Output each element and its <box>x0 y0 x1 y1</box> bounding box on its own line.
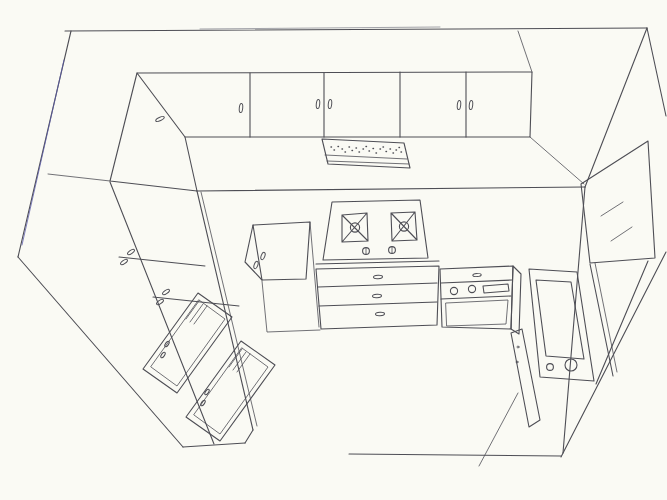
front-panel-b-outline <box>186 341 275 441</box>
ceiling-line <box>65 28 647 31</box>
cooktop <box>323 200 428 260</box>
door-handle-icon <box>127 248 136 255</box>
right-wall-unit <box>581 141 655 384</box>
counter-nosing <box>316 261 439 264</box>
cabinet-end-to-ceiling <box>518 31 532 72</box>
range-hood <box>322 139 410 168</box>
drawer-pull-icon <box>473 273 482 277</box>
hood-grille-line-1 <box>325 155 407 159</box>
door-handle-icon <box>155 116 165 123</box>
right-unit-outline <box>581 141 655 263</box>
door-handle-icon <box>239 103 243 113</box>
door-panel-outline <box>529 269 594 381</box>
door-handle-icon <box>316 99 320 109</box>
hinge-dot <box>517 346 519 348</box>
wall-corner-diagonal <box>585 28 647 187</box>
band-right-edge <box>197 191 253 430</box>
band-left-edge <box>110 182 214 444</box>
cooktop-panel <box>323 200 428 260</box>
door-inner-frame <box>446 300 508 326</box>
floor-skirting-line <box>349 454 561 456</box>
front-panel-a-outline <box>143 293 232 393</box>
back-wall-base-line <box>197 187 585 191</box>
door-handle-icon <box>457 100 461 110</box>
door-handle-icon <box>120 258 129 265</box>
corner-cabinet <box>245 222 320 332</box>
right-wall-base-line <box>563 187 585 453</box>
hood-grille-line-2 <box>327 161 409 164</box>
corner-cabinet-face <box>253 222 310 280</box>
drawer-pull-icon <box>375 312 384 316</box>
corner-cabinet-front-edge <box>262 281 320 332</box>
control-knob-icon <box>468 285 475 292</box>
door-handle-icon <box>328 99 332 109</box>
door-handle-icon <box>162 288 171 295</box>
lower-left-edge-overdraw <box>595 263 617 372</box>
drawer-unit <box>316 261 439 329</box>
kitchen-axonometric-drawing <box>0 0 667 500</box>
cabinet-end-panel-edge <box>530 137 584 184</box>
division-dash-1 <box>601 202 623 216</box>
drawer-pull-icon <box>373 275 382 279</box>
control-row-division <box>441 296 511 299</box>
ceiling-line-overdraw <box>200 27 440 29</box>
door-handle-icon <box>469 100 473 110</box>
upper-cabinets <box>137 31 584 184</box>
drawer-division-2 <box>319 302 437 306</box>
drawer-division-1 <box>318 283 437 287</box>
left-wall-edge-overdraw <box>22 60 64 245</box>
burner-grate-icon <box>391 212 417 241</box>
corner-cabinet-side <box>245 225 262 280</box>
control-button-icon <box>547 364 554 371</box>
door-handle-icon <box>253 261 259 269</box>
left-wall-cabinets <box>48 174 257 444</box>
control-knob-icon <box>450 287 457 294</box>
unit-side-panel <box>511 266 521 334</box>
corner-cabinet-right-edge <box>310 222 319 327</box>
return-cabinet-face <box>110 73 197 191</box>
oven-unit <box>440 266 540 427</box>
return-cabinet <box>110 73 197 191</box>
paper-sheet <box>0 0 667 500</box>
run-tip-edge <box>245 430 253 443</box>
display-slot <box>483 284 509 293</box>
end-panel-strip <box>511 329 540 427</box>
wall-division-line <box>48 174 110 181</box>
division-dash-2 <box>611 227 632 241</box>
hood-stipple-vent <box>331 147 402 154</box>
run-outer-edge <box>18 257 183 447</box>
cabinet-division-1 <box>119 257 205 266</box>
lower-left-edge <box>590 264 613 376</box>
door-handle-icon <box>260 252 266 260</box>
top-drawer-division <box>441 280 512 283</box>
drawer-pull-icon <box>372 294 381 298</box>
appliance-door-panel <box>529 269 594 381</box>
lower-right-edge <box>596 261 648 384</box>
left-appliance-fronts <box>18 257 275 447</box>
right-wall-edge <box>647 28 666 116</box>
burner-grate-icon <box>342 213 368 242</box>
